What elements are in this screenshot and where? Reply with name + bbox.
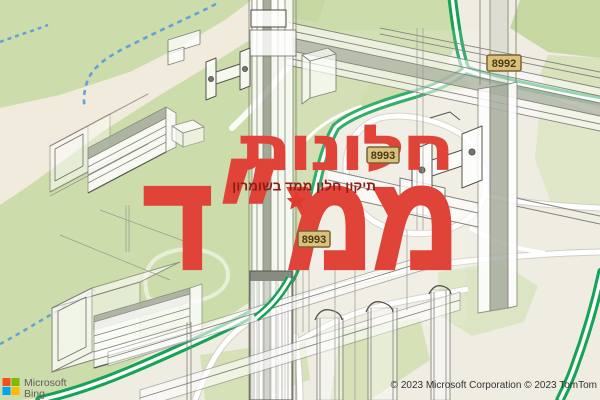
svg-text:תיקון חלון ממד בשומרון: תיקון חלון ממד בשומרון xyxy=(232,179,376,194)
svg-text:8992: 8992 xyxy=(492,58,516,70)
svg-text:8993: 8993 xyxy=(371,150,395,162)
svg-text:Bing: Bing xyxy=(24,388,45,400)
svg-text:8993: 8993 xyxy=(302,234,326,246)
svg-text:© 2023 Microsoft Corporation ©: © 2023 Microsoft Corporation © 2023 TomT… xyxy=(391,380,597,391)
svg-text:ממ״ד: ממ״ד xyxy=(143,148,459,296)
